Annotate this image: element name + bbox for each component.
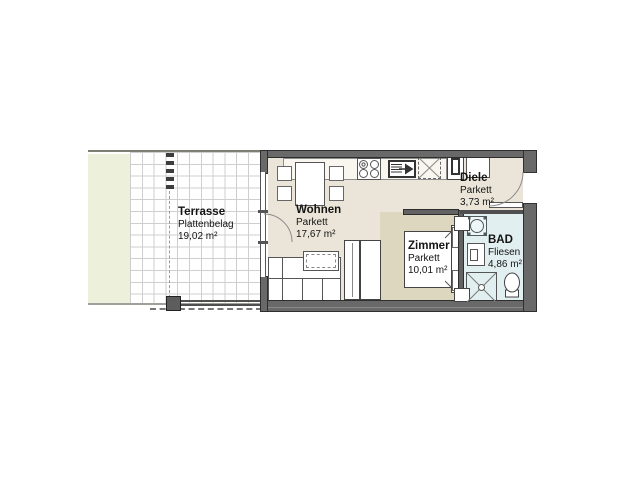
coffee-table-inner [306, 254, 336, 268]
room-surface-wohnen: Parkett [296, 217, 341, 230]
wall-diele-zimmer [403, 209, 459, 215]
room-label-diele: Diele Parkett 3,73 m² [460, 172, 494, 210]
wardrobe [360, 240, 381, 300]
entrance-opening [523, 172, 537, 204]
appliance-space [418, 157, 441, 179]
bath-sink [467, 243, 485, 266]
window-mullion [258, 210, 268, 213]
coffee-table [303, 251, 339, 271]
room-label-zimmer: Zimmer Parkett 10,01 m² [408, 240, 450, 278]
wall-niche [454, 216, 470, 231]
building-wall-left-upper [260, 150, 268, 174]
room-name-wohnen: Wohnen [296, 204, 341, 217]
roof-edge-dashed-line [169, 191, 170, 298]
room-surface-terrasse: Plattenbelag [178, 219, 234, 232]
building-wall-top [260, 150, 537, 158]
window-mullion [258, 241, 268, 244]
chair [277, 166, 292, 181]
sofa-armrest-seam [282, 258, 283, 301]
wardrobe-door-seam [352, 243, 353, 297]
room-name-terrasse: Terrasse [178, 206, 234, 219]
terrace-top-line [88, 150, 260, 152]
kitchen-sink [388, 160, 416, 178]
sofa-cushion-seam [302, 278, 303, 301]
sofa-seat-seam [269, 278, 340, 279]
pier-dashed-column [166, 153, 174, 191]
room-area-diele: 3,73 m² [460, 197, 494, 210]
washing-machine [467, 216, 487, 236]
wall-diele-bad [460, 210, 523, 214]
room-surface-zimmer: Parkett [408, 253, 450, 266]
room-label-terrasse: Terrasse Plattenbelag 19,02 m² [178, 206, 234, 244]
stove [357, 158, 381, 180]
terrace-railing [174, 304, 262, 306]
room-label-bad: BAD Fliesen 4,86 m² [488, 234, 522, 272]
building-wall-left-lower [260, 276, 268, 312]
chair [329, 186, 344, 201]
room-name-diele: Diele [460, 172, 494, 185]
wall-seam [261, 307, 536, 308]
terrace-railing [174, 300, 262, 302]
building-wall-bottom [260, 300, 537, 312]
chair [277, 186, 292, 201]
sofa-cushion-seam [322, 278, 323, 301]
dining-table [295, 162, 325, 206]
room-name-zimmer: Zimmer [408, 240, 450, 253]
room-surface-diele: Parkett [460, 185, 494, 198]
room-surface-bad: Fliesen [488, 247, 522, 260]
room-name-bad: BAD [488, 234, 522, 247]
wardrobe [344, 240, 360, 300]
green-strip [88, 154, 130, 305]
terrace-post [166, 296, 181, 311]
terrace-window [260, 172, 266, 277]
room-area-wohnen: 17,67 m² [296, 229, 341, 242]
shower [466, 272, 497, 303]
room-area-bad: 4,86 m² [488, 259, 522, 272]
entrance-door-leaf [489, 202, 523, 208]
tall-cabinet-door [451, 158, 460, 175]
chair [329, 166, 344, 181]
floor-plan-canvas: Terrasse Plattenbelag 19,02 m² Wohnen Pa… [0, 0, 640, 480]
room-area-zimmer: 10,01 m² [408, 265, 450, 278]
bath-sink-basin [470, 249, 478, 261]
room-area-terrasse: 19,02 m² [178, 231, 234, 244]
wall-niche [454, 288, 470, 302]
room-label-wohnen: Wohnen Parkett 17,67 m² [296, 204, 341, 242]
